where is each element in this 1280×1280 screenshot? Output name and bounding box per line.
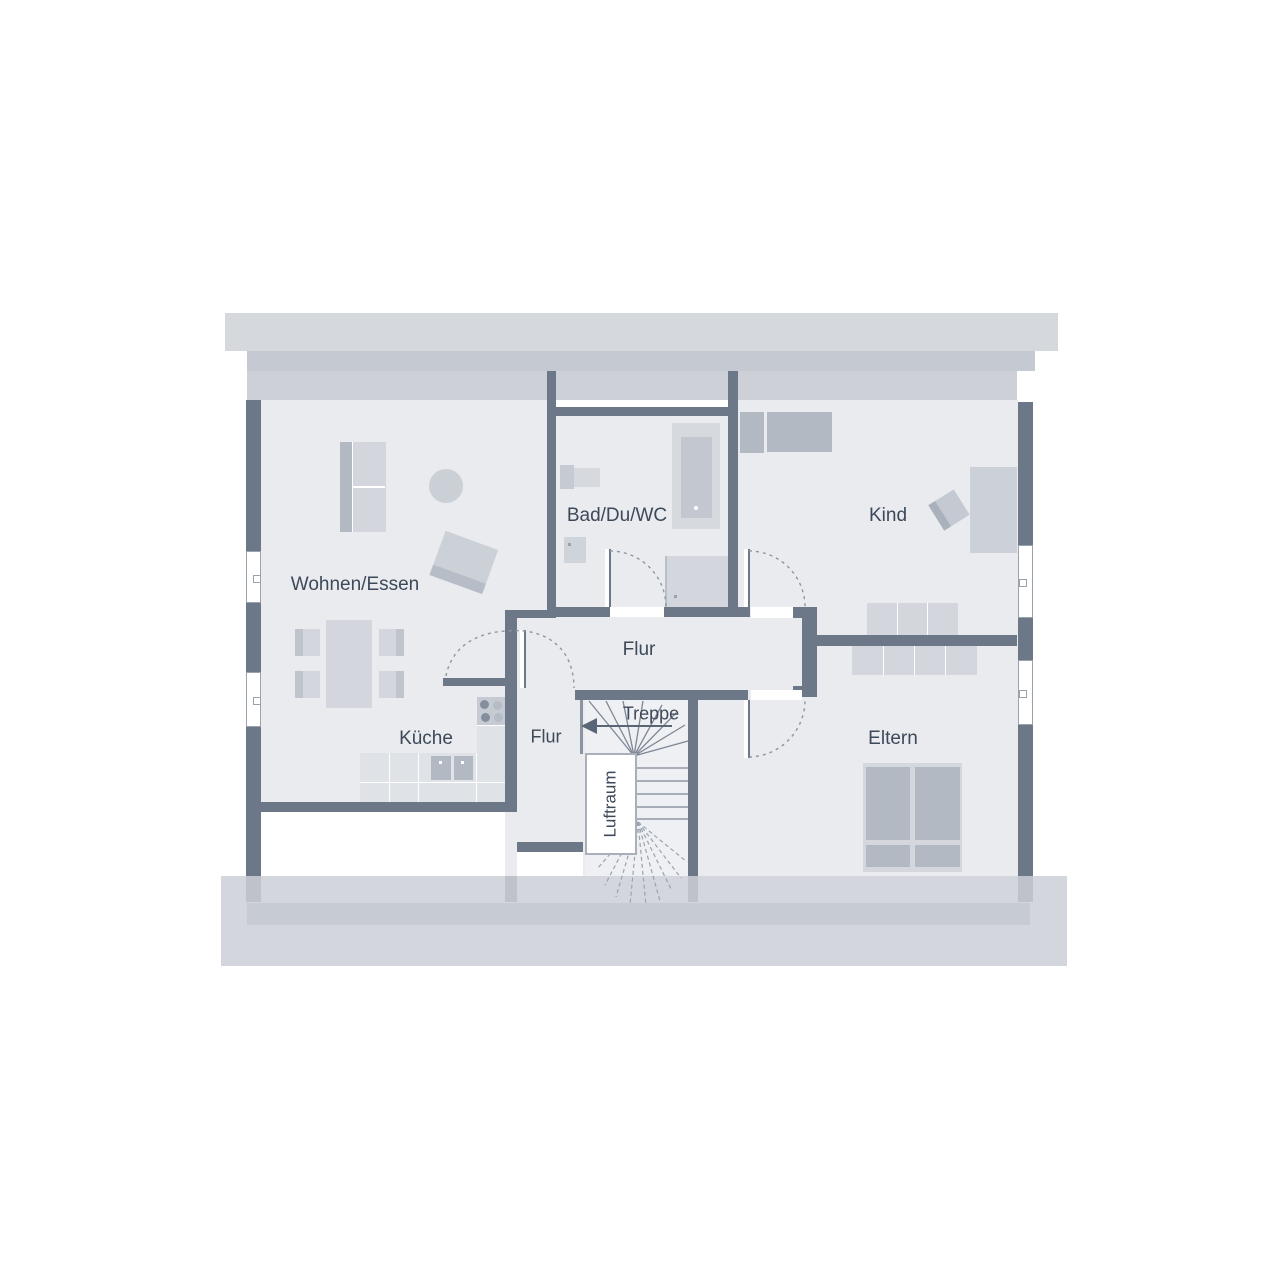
room-label-flur: Flur: [623, 639, 656, 661]
room-label-bad-du-wc: Bad/Du/WC: [567, 505, 667, 527]
room-label-luftraum: Luftraum: [601, 770, 621, 837]
door-arc-eltern: [749, 700, 805, 757]
room-label-wohnen-essen: Wohnen/Essen: [291, 574, 420, 596]
door-arc-kind: [749, 551, 805, 607]
floor-plan-canvas: Luftraum Wohnen/Essen Bad/Du/WC Kind Flu…: [0, 0, 1280, 1280]
stair-treads: [637, 768, 688, 819]
door-arc-kitchen: [446, 631, 574, 688]
room-label-eltern: Eltern: [868, 728, 918, 750]
room-label-treppe: Treppe: [623, 704, 679, 725]
room-label-kueche: Küche: [399, 728, 453, 750]
door-arc-bath: [610, 551, 666, 607]
room-label-kind: Kind: [869, 505, 907, 527]
luftraum-void: Luftraum: [585, 753, 637, 855]
room-label-flur-lower: Flur: [531, 727, 562, 748]
